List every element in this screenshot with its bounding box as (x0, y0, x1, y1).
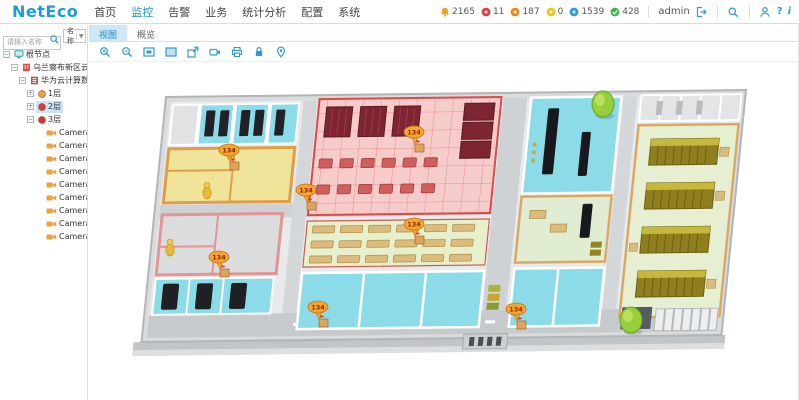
floor-icon (38, 103, 46, 111)
root-icon (14, 50, 24, 59)
tree-node-根节点[interactable]: −根节点 (0, 48, 87, 61)
alarm-major[interactable]: 187 (510, 7, 539, 17)
camera-icon (46, 194, 57, 202)
tree-node-Camera3[interactable]: Camera3 (0, 152, 87, 165)
dot-icon (510, 7, 520, 17)
tree-node-label: 1层 (48, 88, 61, 99)
camera-icon (46, 207, 57, 215)
tree-node-content[interactable]: Camera2 (44, 140, 87, 152)
monitor-view-panel: 视图概览 (89, 25, 799, 400)
camera-icon (46, 142, 57, 150)
search-icon[interactable] (727, 5, 740, 18)
tree-node-Camera5[interactable]: Camera5 (0, 178, 87, 191)
device-tree-panel: 名称 ▼ −根节点−乌兰察布新区云计算−华为云计算数据中心+1层+2层−3层Ca… (0, 25, 88, 400)
tree-node-label: Camera4 (59, 167, 87, 176)
svg-text:134: 134 (311, 304, 325, 312)
zoom-out-icon[interactable] (119, 44, 134, 59)
divider (648, 6, 649, 18)
tree-node-1层[interactable]: +1层 (0, 87, 87, 100)
alarm-count: 428 (622, 7, 639, 17)
tree-node-content[interactable]: Camera3 (44, 153, 87, 165)
tree-node-content[interactable]: 3层 (36, 114, 63, 126)
divider (749, 6, 750, 18)
camera-icon (46, 129, 57, 137)
svg-text:134: 134 (299, 187, 313, 195)
person-figure (166, 239, 174, 256)
top-bar: NetEco 首页监控告警业务统计分析配置系统 2165111870153942… (0, 0, 799, 24)
username: admin (658, 6, 689, 17)
video-icon[interactable] (207, 44, 222, 59)
view-tabs: 视图概览 (89, 25, 798, 42)
svg-text:134: 134 (509, 306, 523, 314)
check-icon (610, 7, 620, 17)
tree-node-content[interactable]: 1层 (36, 88, 63, 100)
tree-node-Camera9[interactable]: Camera9 (0, 230, 87, 243)
tree-node-label: 2层 (48, 101, 61, 112)
tree-node-content[interactable]: 华为云计算数据中心 (28, 75, 87, 87)
building (132, 90, 750, 356)
tab-0[interactable]: 视图 (89, 25, 127, 41)
camera-icon (46, 181, 57, 189)
menu-item-1[interactable]: 监控 (131, 4, 153, 20)
tree-expander (35, 220, 42, 227)
dc-icon (30, 76, 39, 85)
map-toolbar (89, 42, 798, 62)
alarm-count: 0 (558, 7, 564, 17)
tree-expander (35, 168, 42, 175)
tree-expander (35, 129, 42, 136)
bell-icon (440, 7, 450, 17)
search-type-label: 名称 (67, 26, 74, 46)
lock-icon[interactable] (251, 44, 266, 59)
menu-item-0[interactable]: 首页 (94, 4, 116, 20)
alarm-count: 1539 (581, 7, 604, 17)
menu-item-4[interactable]: 统计分析 (242, 4, 286, 20)
tree-node-content[interactable]: 根节点 (12, 49, 52, 61)
tree-node-content[interactable]: 2层 (36, 101, 63, 113)
svg-text:134: 134 (407, 221, 421, 229)
tree-node-label: Camera1 (59, 128, 87, 137)
tree-expander[interactable]: − (3, 51, 10, 58)
camera-icon (46, 220, 57, 228)
tree-node-content[interactable]: Camera7 (44, 205, 87, 217)
tree-node-label: 华为云计算数据中心 (41, 75, 87, 86)
help-icon[interactable]: ? (777, 6, 783, 17)
site-icon (22, 63, 31, 72)
zoom-in-icon[interactable] (97, 44, 112, 59)
export-icon[interactable] (185, 44, 200, 59)
search-magnifier-icon[interactable] (49, 30, 60, 41)
svg-text:134: 134 (407, 129, 421, 137)
tree-expander[interactable]: − (11, 64, 18, 71)
tree-node-Camera6[interactable]: Camera6 (0, 191, 87, 204)
floorplan-3d[interactable]: 134 134 134 134 134 134 134 (97, 62, 797, 398)
alarm-minor[interactable]: 0 (546, 7, 564, 17)
tree-expander[interactable]: − (19, 77, 26, 84)
tree-node-label: Camera9 (59, 232, 87, 241)
tree-node-content[interactable]: Camera6 (44, 192, 87, 204)
floor-icon (38, 116, 46, 124)
tab-1[interactable]: 概览 (127, 25, 165, 41)
tree-node-乌兰察布新区云计算[interactable]: −乌兰察布新区云计算 (0, 61, 87, 74)
user-icon[interactable] (759, 5, 772, 18)
camera-icon (46, 155, 57, 163)
tree-expander[interactable]: + (27, 103, 34, 110)
tree-node-label: 根节点 (26, 49, 50, 60)
dot-icon (481, 7, 491, 17)
alarm-total[interactable]: 2165 (440, 7, 475, 17)
fullscreen-icon[interactable] (163, 44, 178, 59)
tree-node-content[interactable]: Camera8 (44, 218, 87, 230)
tree-expander (35, 207, 42, 214)
tree-node-content[interactable]: Camera4 (44, 166, 87, 178)
floor-icon (38, 90, 46, 98)
tree-expander (35, 194, 42, 201)
svg-text:134: 134 (212, 254, 226, 262)
tree-node-Camera1[interactable]: Camera1 (0, 126, 87, 139)
tree-node-3层[interactable]: −3层 (0, 113, 87, 126)
search-type-dropdown[interactable]: 名称 ▼ (63, 29, 86, 43)
divider (717, 6, 718, 18)
camera-icon (46, 168, 57, 176)
alarm-warning[interactable]: 1539 (569, 7, 604, 17)
info-icon[interactable]: i (788, 6, 791, 17)
main-menu: 首页监控告警业务统计分析配置系统 (94, 4, 360, 20)
tree-expander (35, 155, 42, 162)
chevron-down-icon: ▼ (76, 33, 84, 40)
print-icon[interactable] (229, 44, 244, 59)
menu-item-5[interactable]: 配置 (301, 4, 323, 20)
tree-expander[interactable]: + (27, 90, 34, 97)
tree-node-label: Camera3 (59, 154, 87, 163)
alarm-summary: 21651118701539428 (440, 7, 639, 17)
alarm-cleared[interactable]: 428 (610, 7, 639, 17)
alarm-count: 2165 (452, 7, 475, 17)
dot-icon (569, 7, 579, 17)
svg-text:134: 134 (222, 147, 236, 155)
tree-node-label: Camera8 (59, 219, 87, 228)
tree-node-Camera2[interactable]: Camera2 (0, 139, 87, 152)
tree-node-Camera7[interactable]: Camera7 (0, 204, 87, 217)
locate-icon[interactable] (273, 44, 288, 59)
tree-node-Camera4[interactable]: Camera4 (0, 165, 87, 178)
tree-node-label: Camera6 (59, 193, 87, 202)
neteco-logo: NetEco (12, 2, 78, 21)
tree-node-label: Camera5 (59, 180, 87, 189)
dot-icon (546, 7, 556, 17)
fit-view-icon[interactable] (141, 44, 156, 59)
tree-node-华为云计算数据中心[interactable]: −华为云计算数据中心 (0, 74, 87, 87)
tree-node-2层[interactable]: +2层 (0, 100, 87, 113)
person-figure (203, 182, 211, 199)
alarm-count: 11 (493, 7, 504, 17)
tree-node-Camera8[interactable]: Camera8 (0, 217, 87, 230)
tree-node-content[interactable]: Camera5 (44, 179, 87, 191)
tree-node-label: 乌兰察布新区云计算 (33, 62, 87, 73)
floorplan-canvas[interactable]: 134 134 134 134 134 134 134 (89, 62, 798, 398)
menu-item-6[interactable]: 系统 (338, 4, 360, 20)
tree-node-label: Camera2 (59, 141, 87, 150)
tree-expander[interactable]: − (27, 116, 34, 123)
menu-item-2[interactable]: 告警 (168, 4, 190, 20)
tree-expander (35, 233, 42, 240)
tree-node-label: Camera7 (59, 206, 87, 215)
tree-node-content[interactable]: Camera1 (44, 127, 87, 139)
camera-icon (46, 233, 57, 241)
alarm-count: 187 (522, 7, 539, 17)
tree-node-label: 3层 (48, 114, 61, 125)
logout-icon[interactable] (695, 5, 708, 18)
alarm-critical[interactable]: 11 (481, 7, 504, 17)
tree-node-content[interactable]: 乌兰察布新区云计算 (20, 62, 87, 74)
tree-expander (35, 181, 42, 188)
menu-item-3[interactable]: 业务 (205, 4, 227, 20)
tree-expander (35, 142, 42, 149)
tree-node-content[interactable]: Camera9 (44, 231, 87, 243)
device-tree: −根节点−乌兰察布新区云计算−华为云计算数据中心+1层+2层−3层Camera1… (0, 46, 87, 243)
